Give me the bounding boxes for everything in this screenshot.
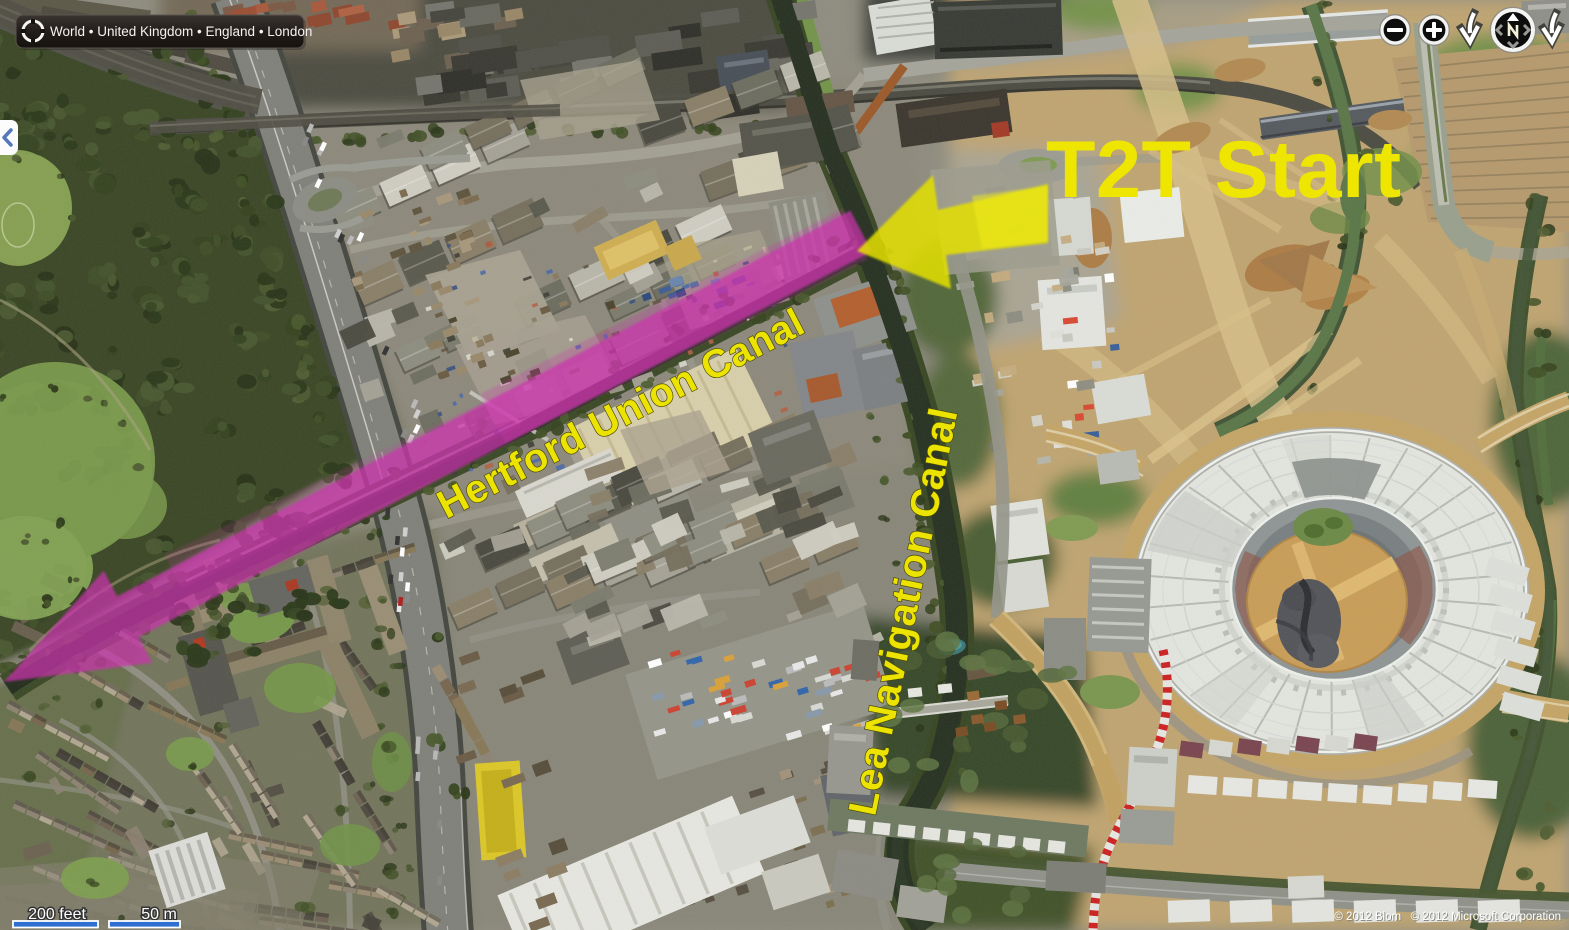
svg-text:World • United Kingdom • Engla: World • United Kingdom • England • Londo… <box>50 24 312 39</box>
svg-text:© 2012 Blom © 2012 Microsoft: © 2012 Blom © 2012 Microsoft Corporation <box>1334 911 1561 923</box>
svg-text:T2T Start: T2T Start <box>1046 125 1402 215</box>
